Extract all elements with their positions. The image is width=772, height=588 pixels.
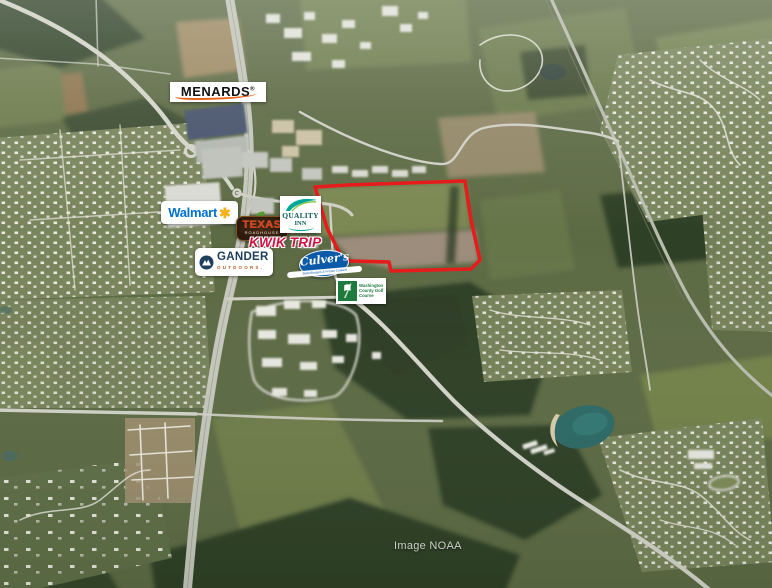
aerial-map: MENARDS® Walmart ✱ TEXAS ROADHOUSE QUALI… [0,0,772,588]
golf-line-3: Course [359,294,383,298]
golf-course-logo: Washington County Golf Course [336,278,386,304]
quality-inn-logo: QUALITY INN [280,196,321,233]
gander-name: GANDER [217,252,269,262]
gander-texts: GANDER OUTDOORS. [217,252,269,273]
gander-sub: OUTDOORS. [217,263,269,273]
menards-logo: MENARDS® [170,82,266,102]
walmart-spark-icon: ✱ [219,206,231,220]
golf-line-2: County Golf [359,289,383,293]
golf-flag-icon [338,281,357,301]
walmart-logo: Walmart ✱ [161,201,238,224]
quality-leaf-icon [283,197,319,212]
golf-line-1: Washington [359,284,383,288]
map-attribution: Image NOAA [394,540,462,552]
golf-course-texts: Washington County Golf Course [359,284,388,299]
quality-inn-name: QUALITY [280,212,321,220]
quality-swoosh-icon [288,227,314,231]
gander-outdoors-logo: GANDER OUTDOORS. [195,248,273,276]
walmart-name: Walmart [168,205,217,220]
quality-inn-sub: INN [280,220,321,227]
gander-mountain-icon [199,255,214,270]
